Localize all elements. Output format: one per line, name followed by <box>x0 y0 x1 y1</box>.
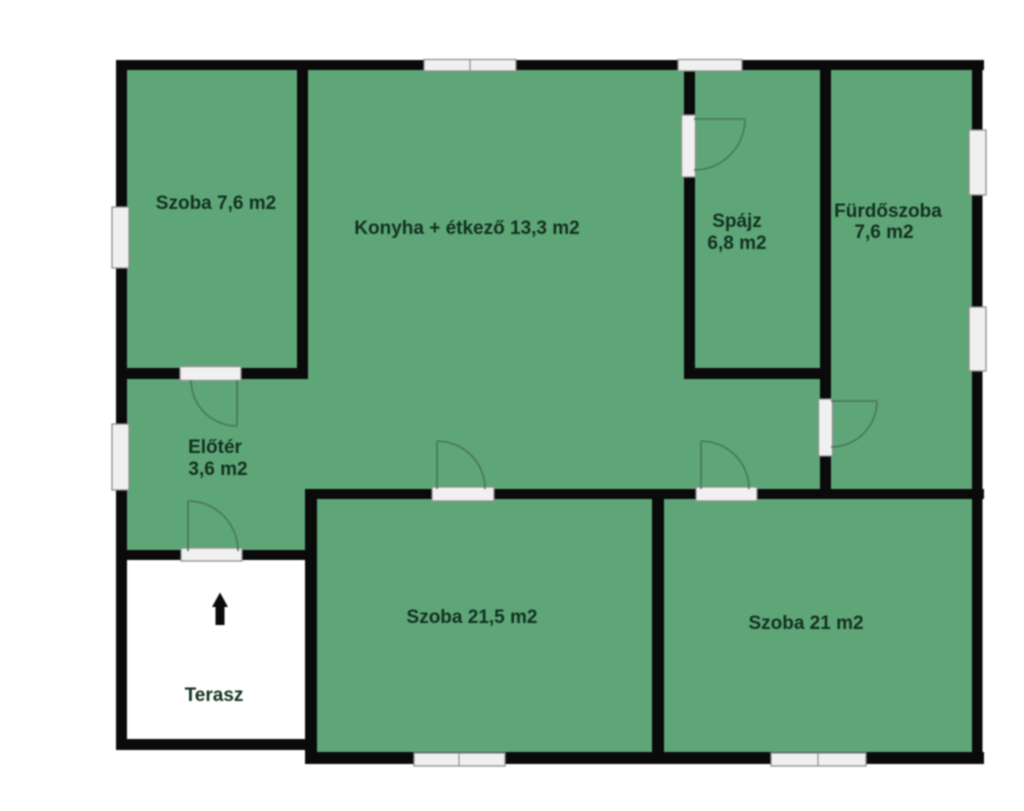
svg-text:Szoba 21,5 m2: Szoba 21,5 m2 <box>407 607 538 628</box>
svg-text:Szoba 21 m2: Szoba 21 m2 <box>748 613 863 634</box>
svg-text:6,8 m2: 6,8 m2 <box>707 233 766 254</box>
svg-text:Spájz: Spájz <box>712 211 762 232</box>
svg-text:Konyha + étkező 13,3 m2: Konyha + étkező 13,3 m2 <box>354 218 579 239</box>
svg-text:Terasz: Terasz <box>185 685 244 706</box>
svg-text:3,6 m2: 3,6 m2 <box>188 459 247 480</box>
svg-text:Fürdőszoba: Fürdőszoba <box>834 201 942 222</box>
svg-text:Szoba 7,6 m2: Szoba 7,6 m2 <box>156 193 276 214</box>
svg-text:7,6 m2: 7,6 m2 <box>854 222 913 243</box>
svg-text:Előtér: Előtér <box>188 437 242 458</box>
